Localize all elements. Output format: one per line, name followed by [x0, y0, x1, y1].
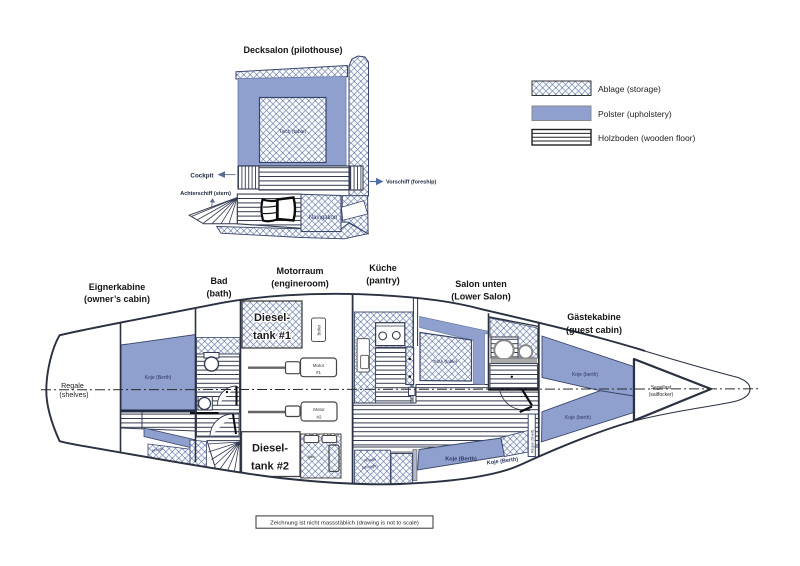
svg-text:Tisch (table): Tisch (table) — [433, 359, 458, 364]
svg-text:Ablage (storage): Ablage (storage) — [598, 84, 661, 94]
svg-text:Motor: Motor — [313, 363, 325, 368]
svg-text:Segellast(sailfocker): Segellast(sailfocker) — [649, 385, 674, 398]
svg-text:Diesel-: Diesel- — [254, 312, 290, 324]
svg-text:Achterschiff (stern): Achterschiff (stern) — [180, 191, 231, 197]
svg-text:Vorschiff (foreship): Vorschiff (foreship) — [386, 180, 436, 186]
svg-text:Tisch (table): Tisch (table) — [279, 129, 307, 135]
svg-text:Koje (Berth): Koje (Berth) — [145, 375, 172, 381]
svg-text:Zeichnung ist nicht massstäbli: Zeichnung ist nicht massstäblich (drawin… — [270, 520, 419, 526]
svg-text:Cockpit: Cockpit — [190, 172, 214, 179]
svg-text:Navigation: Navigation — [309, 215, 337, 221]
svg-text:Koje (berth): Koje (berth) — [565, 415, 591, 421]
svg-text:Koje (Berth): Koje (Berth) — [445, 457, 477, 463]
svg-text:Motor: Motor — [313, 407, 325, 412]
svg-text:Polster (upholstery): Polster (upholstery) — [598, 109, 672, 119]
svg-text:Batt: Batt — [307, 454, 315, 459]
svg-text:Boiler: Boiler — [317, 324, 322, 335]
svg-text:tank #2: tank #2 — [251, 461, 289, 473]
svg-text:#2: #2 — [316, 415, 322, 420]
svg-text:Holzboden (wooden floor): Holzboden (wooden floor) — [598, 133, 696, 143]
svg-text:Koje (berth): Koje (berth) — [572, 372, 598, 378]
svg-text:#1: #1 — [316, 370, 322, 375]
svg-text:Diesel-: Diesel- — [252, 443, 288, 455]
svg-text:tank #1: tank #1 — [253, 330, 291, 342]
svg-text:Decksalon (pilothouse): Decksalon (pilothouse) — [243, 45, 342, 55]
svg-text:Regal (Shelf): Regal (Shelf) — [529, 429, 534, 453]
